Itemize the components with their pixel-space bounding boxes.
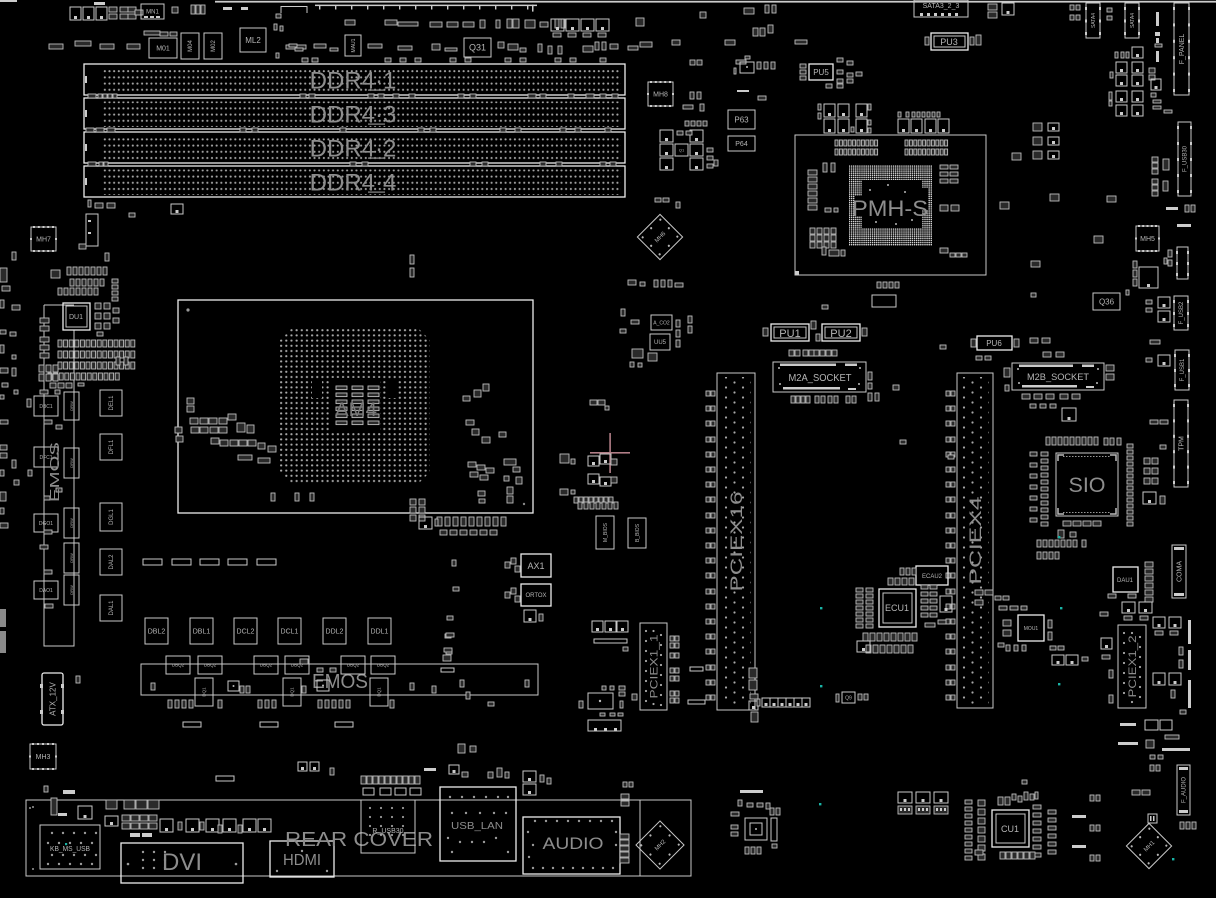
svg-text:PMH-S: PMH-S — [852, 196, 928, 221]
svg-text:DCL1: DCL1 — [281, 629, 299, 636]
svg-text:Q36: Q36 — [1099, 297, 1115, 306]
svg-text:DRW: DRW — [69, 458, 74, 468]
svg-text:DRW: DRW — [69, 518, 74, 528]
svg-text:F_AUDIO: F_AUDIO — [1182, 777, 1188, 803]
svg-text:DU1: DU1 — [69, 314, 83, 321]
svg-text:DBL1: DBL1 — [193, 629, 211, 636]
svg-text:PU2: PU2 — [830, 328, 851, 340]
svg-text:AM4: AM4 — [335, 400, 377, 421]
svg-text:F_PANEL: F_PANEL — [1179, 34, 1186, 65]
svg-text:DBQ2: DBQ2 — [377, 663, 390, 668]
svg-text:AUDIO: AUDIO — [543, 834, 604, 853]
svg-text:MH3: MH3 — [36, 754, 51, 761]
svg-text:M_BIOS: M_BIOS — [603, 522, 609, 542]
svg-text:AX1: AX1 — [527, 561, 544, 571]
svg-text:ECAU2: ECAU2 — [922, 574, 943, 580]
svg-text:COMA: COMA — [1177, 561, 1184, 582]
svg-text:CU1: CU1 — [1001, 824, 1019, 834]
svg-text:UU5: UU5 — [654, 340, 667, 346]
svg-text:ML2: ML2 — [245, 36, 261, 45]
svg-text:DBQ2: DBQ2 — [260, 663, 273, 668]
svg-text:B_BIOS: B_BIOS — [635, 523, 641, 542]
svg-text:MN1: MN1 — [146, 10, 159, 16]
svg-text:EMOS: EMOS — [47, 442, 62, 502]
svg-text:ATX_12V: ATX_12V — [49, 682, 58, 716]
svg-text:DAL1: DAL1 — [109, 600, 115, 616]
svg-text:M02: M02 — [211, 40, 217, 52]
svg-text:KB_MS_USB: KB_MS_USB — [50, 844, 90, 853]
svg-text:MOU1: MOU1 — [1024, 626, 1039, 632]
svg-text:DAU1: DAU1 — [1117, 578, 1134, 584]
svg-text:PU6: PU6 — [986, 339, 1002, 348]
svg-text:DBC1: DBC1 — [39, 404, 53, 410]
svg-text:P64: P64 — [735, 141, 748, 148]
svg-text:DQ1: DQ1 — [290, 687, 295, 697]
svg-text:DGL1: DGL1 — [109, 509, 115, 525]
svg-text:M01: M01 — [156, 46, 170, 53]
svg-text:Q31: Q31 — [469, 43, 486, 53]
svg-text:DQ1: DQ1 — [377, 687, 382, 697]
svg-text:DBQ2: DBQ2 — [347, 663, 360, 668]
svg-text:USB_LAN: USB_LAN — [451, 820, 503, 832]
svg-text:DRW: DRW — [69, 585, 74, 595]
svg-text:M2B_SOCKET: M2B_SOCKET — [1027, 372, 1089, 383]
svg-text:MH8: MH8 — [653, 92, 668, 99]
svg-text:DEL1: DEL1 — [109, 395, 115, 411]
svg-text:SATA3_2_3: SATA3_2_3 — [923, 3, 960, 10]
svg-text:PCIEX1_2: PCIEX1_2 — [1127, 636, 1139, 698]
svg-text:P63: P63 — [734, 115, 749, 124]
svg-text:DRW: DRW — [69, 553, 74, 563]
svg-text:F_USB1: F_USB1 — [1180, 358, 1186, 381]
svg-text:DBL2: DBL2 — [148, 629, 166, 636]
svg-text:SATA4: SATA4 — [1130, 13, 1136, 28]
svg-text:DRW: DRW — [69, 401, 74, 411]
svg-text:DDL1: DDL1 — [371, 629, 389, 636]
svg-text:TPM: TPM — [1179, 436, 1186, 451]
svg-text:ORTOX: ORTOX — [525, 593, 546, 599]
svg-text:PU1: PU1 — [779, 328, 800, 340]
svg-text:F_USB30: F_USB30 — [1183, 145, 1189, 172]
svg-text:PU5: PU5 — [813, 68, 829, 77]
svg-text:DVI: DVI — [162, 849, 202, 876]
svg-text:DAO1: DAO1 — [39, 588, 53, 594]
svg-text:DFL1: DFL1 — [109, 439, 115, 454]
svg-text:REAR COVER: REAR COVER — [285, 829, 433, 851]
svg-text:R_USB30: R_USB30 — [372, 828, 403, 835]
svg-text:SATA4: SATA4 — [1091, 13, 1097, 28]
svg-text:ECU1: ECU1 — [885, 603, 909, 613]
svg-text:A_CO2: A_CO2 — [653, 320, 670, 326]
svg-text:PCIEX4: PCIEX4 — [966, 497, 985, 585]
svg-text:DQ1: DQ1 — [202, 687, 207, 697]
svg-text:SIO: SIO — [1069, 474, 1106, 497]
svg-text:DAL2: DAL2 — [109, 554, 115, 570]
svg-text:M2A_SOCKET: M2A_SOCKET — [789, 373, 852, 384]
svg-text:Q1: Q1 — [679, 147, 685, 152]
svg-text:M04: M04 — [188, 40, 194, 52]
svg-text:PCIEX1_1: PCIEX1_1 — [648, 635, 660, 699]
svg-text:DGO1: DGO1 — [39, 521, 53, 527]
svg-text:DBQ2: DBQ2 — [172, 663, 185, 668]
svg-text:F_USB2: F_USB2 — [1179, 301, 1185, 324]
svg-text:PCIEX16: PCIEX16 — [727, 492, 746, 592]
svg-text:PU3: PU3 — [940, 37, 958, 47]
svg-text:MH7: MH7 — [36, 237, 51, 244]
svg-text:DBQ2: DBQ2 — [204, 663, 217, 668]
svg-text:DCL2: DCL2 — [237, 629, 255, 636]
svg-text:DDL2: DDL2 — [326, 629, 344, 636]
svg-text:Q9: Q9 — [845, 695, 852, 701]
svg-text:MAU1: MAU1 — [351, 38, 357, 52]
svg-text:MH5: MH5 — [1140, 236, 1155, 243]
svg-text:HDMI: HDMI — [283, 852, 321, 869]
